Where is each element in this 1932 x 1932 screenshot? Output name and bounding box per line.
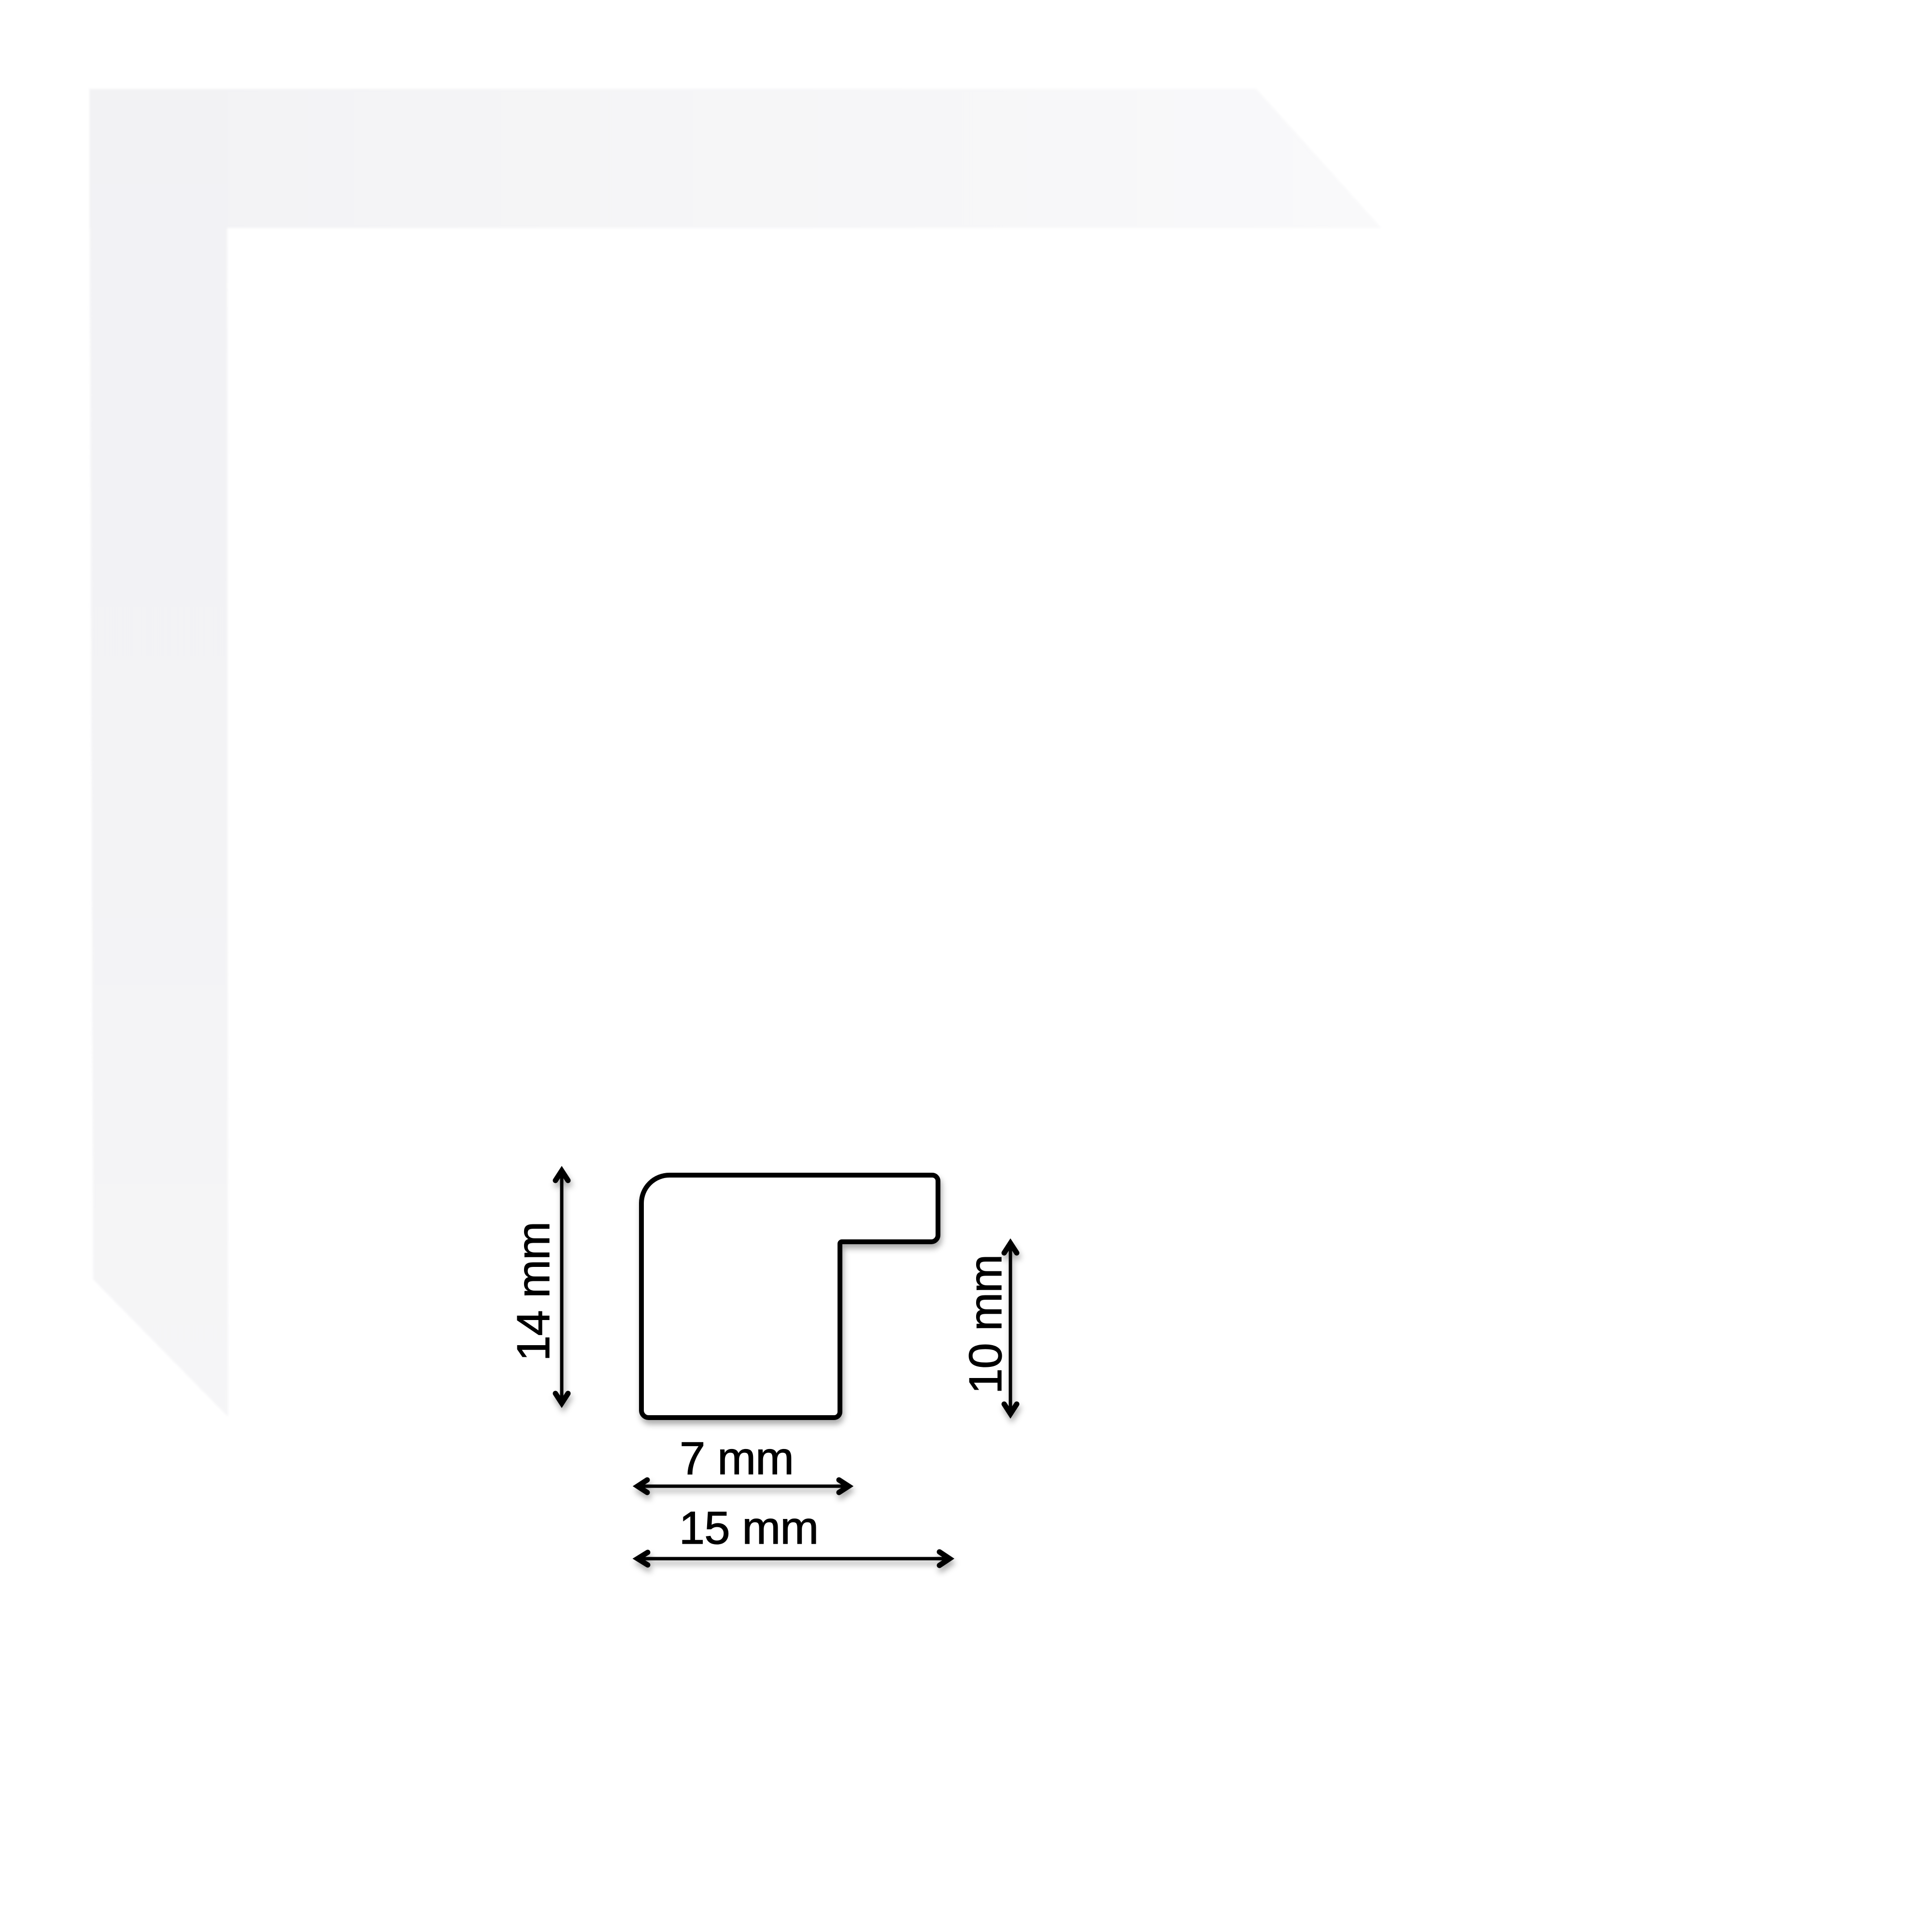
svg-text:7 mm: 7 mm [680, 1433, 794, 1484]
svg-text:15 mm: 15 mm [679, 1502, 818, 1554]
svg-text:14 mm: 14 mm [508, 1222, 559, 1361]
svg-text:10 mm: 10 mm [960, 1255, 1011, 1394]
